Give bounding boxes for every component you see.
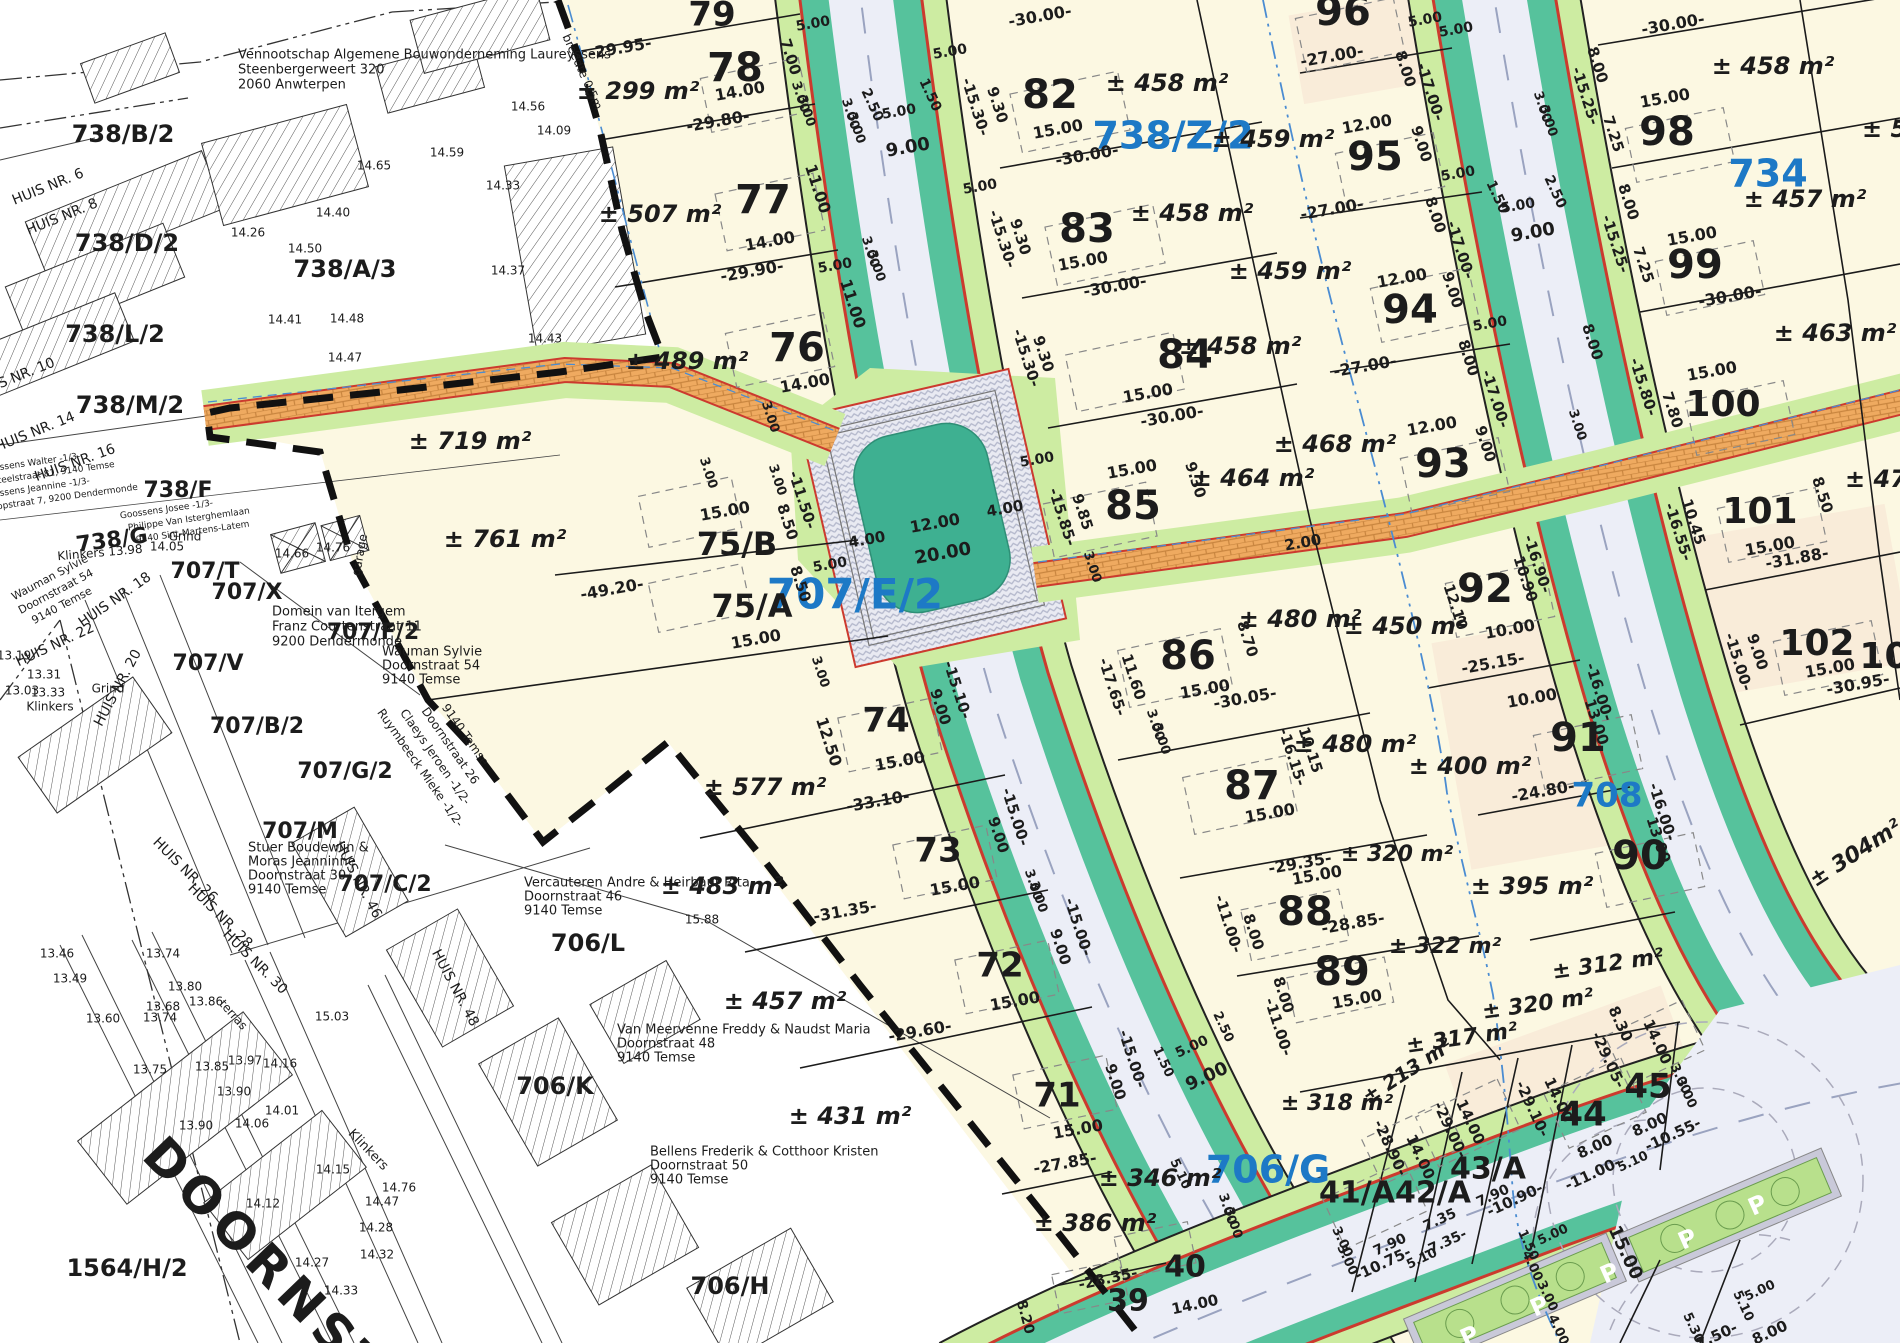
spot-height: 13.74 (143, 1011, 177, 1025)
parcel-number-92: 92 (1457, 566, 1513, 612)
zone-label-707-b-2: 707/B/2 (210, 714, 304, 739)
spot-height: 14.16 (263, 1057, 297, 1071)
parcel-number-82: 82 (1022, 72, 1078, 118)
parcel-number-74: 74 (862, 701, 909, 741)
owner-text: 9140 Temse (524, 904, 602, 919)
spot-height: 13.80 (168, 980, 202, 994)
parcel-number-45: 45 (1624, 1067, 1671, 1107)
owner-text: Franz Courtenstraat 11 (272, 620, 422, 635)
spot-height: 14.28 (359, 1221, 393, 1235)
owner-text: 9140 Temse (248, 883, 326, 898)
owner-text: Bellens Frederik & Cotthoor Kristen (650, 1145, 878, 1160)
spot-height: 13.49 (53, 972, 87, 986)
spot-height: 14.48 (330, 312, 364, 326)
spot-height: 14.50 (288, 242, 322, 256)
parcel-number-75a: 75/A (712, 587, 793, 625)
zone-label-706-k: 706/K (516, 1072, 595, 1100)
cadastral-map: 738/Z/2734707/E/2708706/G7978777675/B75/… (0, 0, 1900, 1343)
owner-text: 9140 Temse (617, 1051, 695, 1066)
spot-height: 13.90 (179, 1119, 213, 1133)
zone-label-706-h: 706/H (691, 1272, 770, 1300)
area-label: ± 459 m² (1229, 257, 1352, 285)
spot-height: 15.03 (315, 1010, 349, 1024)
spot-height: 14.47 (328, 351, 362, 365)
parcel-number-75b: 75/B (697, 525, 778, 563)
owner-text: Doornstraat 48 (617, 1037, 715, 1052)
parcel-number-99: 99 (1667, 242, 1723, 288)
area-label: ± 400 m² (1409, 752, 1532, 780)
parcel-number-100: 100 (1685, 384, 1760, 425)
zone-label-1564-h-2: 1564/H/2 (66, 1254, 187, 1282)
parcel-number-98: 98 (1639, 109, 1695, 155)
owner-text: Steenbergerweert 320 (238, 63, 385, 78)
area-label: ± 322 m² (1389, 934, 1502, 959)
parcel-number-41a: 41/A (1319, 1176, 1396, 1211)
surface-label: Grind (92, 682, 125, 696)
area-label: ± 507 m² (599, 200, 722, 228)
parcel-number-96: 96 (1315, 0, 1371, 35)
area-label: ± 386 m² (1034, 1209, 1157, 1237)
spot-height: 14.56 (511, 100, 545, 114)
area-label: ± 346 m² (1099, 1164, 1222, 1192)
spot-height: 13.75 (133, 1063, 167, 1077)
zone-label-738-m-2: 738/M/2 (76, 391, 184, 419)
spot-height: 14.06 (235, 1117, 269, 1131)
zone-label-707-g-2: 707/G/2 (297, 759, 392, 784)
parcel-number-101: 101 (1722, 491, 1797, 532)
spot-height: 13.85 (195, 1060, 229, 1074)
owner-text: Domein van Itergem (272, 605, 406, 620)
area-label: ± 458 m² (1179, 332, 1302, 360)
area-label: ± 458 m² (1106, 69, 1229, 97)
area-label: ± 450 m² (1344, 612, 1467, 640)
zone-label-706-l: 706/L (551, 929, 625, 957)
owner-text: Doornstraat 46 (524, 890, 622, 905)
owner-text: Doornstraat 30 (248, 869, 346, 884)
area-label: ± 761 m² (444, 525, 567, 553)
spot-height: 13.97 (228, 1054, 262, 1068)
spot-height: 14.59 (430, 146, 464, 160)
spot-height: 14.47 (365, 1195, 399, 1209)
area-label: ± 431 m² (789, 1102, 912, 1130)
surface-label: Klinkers (26, 700, 73, 714)
owner-text: 9140 Temse (382, 673, 460, 688)
zone-label-707-v: 707/V (173, 651, 244, 676)
spot-height: 14.40 (316, 206, 350, 220)
owner-text: Doornstraat 54 (382, 659, 480, 674)
spot-height: 14.09 (537, 124, 571, 138)
parcel-number-94: 94 (1382, 287, 1438, 333)
owner-text: Doornstraat 50 (650, 1159, 748, 1174)
parcel-number-76: 76 (769, 325, 825, 371)
spot-height: 13.90 (217, 1085, 251, 1099)
area-label: ± 459 m² (1212, 125, 1335, 153)
area-label-partial: ± 52 (1862, 115, 1900, 143)
owner-text: Vercauteren Andre & Heirbaut Rita (524, 876, 750, 891)
parcel-number-77: 77 (735, 177, 791, 223)
zone-label-738-d-2: 738/D/2 (75, 229, 179, 257)
parcel-number-83: 83 (1059, 206, 1115, 252)
zone-label-738-l-2: 738/L/2 (65, 320, 165, 348)
spot-height: 14.26 (231, 226, 265, 240)
spot-height: 14.43 (528, 332, 562, 346)
spot-height: 13.33 (31, 686, 65, 700)
area-label: ± 458 m² (1131, 199, 1254, 227)
parcel-number-85: 85 (1105, 483, 1161, 529)
spot-height: 15.88 (685, 913, 719, 927)
owner-text: Stuer Boudewijn & (248, 841, 369, 856)
cadastral-map-page: 738/Z/2734707/E/2708706/G7978777675/B75/… (0, 0, 1900, 1343)
parcel-number-71: 71 (1033, 1076, 1080, 1116)
area-label: ± 464 m² (1192, 464, 1315, 492)
parcel-number-79: 79 (688, 0, 735, 35)
zone-label-706-g: 706/G (1206, 1148, 1330, 1192)
zone-label-738-b-2: 738/B/2 (72, 120, 175, 148)
parcel-number-73: 73 (914, 831, 961, 871)
spot-height: 14.32 (360, 1248, 394, 1262)
zone-label-738-a-3: 738/A/3 (294, 255, 397, 283)
spot-height: 13.60 (86, 1012, 120, 1026)
area-label: ± 719 m² (409, 427, 532, 455)
owner-text: Moras Jeanninne (248, 855, 356, 870)
parcel-number-72: 72 (976, 946, 1023, 986)
parcel-number-86: 86 (1160, 633, 1216, 679)
owner-text: Vennootschap Algemene Bouwonderneming La… (238, 48, 611, 63)
area-label: ± 489 m² (626, 347, 749, 375)
parcel-number-95: 95 (1347, 134, 1403, 180)
area-label: ± 320 m² (1341, 842, 1454, 867)
owner-text: Wauman Sylvie (382, 645, 482, 660)
spot-height: 14.65 (357, 159, 391, 173)
area-label: ± 395 m² (1471, 872, 1594, 900)
area-label: ± 468 m² (1274, 430, 1397, 458)
spot-height: 14.76 (382, 1181, 416, 1195)
parcel-number-93: 93 (1415, 441, 1471, 487)
owner-text: 2060 Anwterpen (238, 78, 346, 93)
spot-height: 14.33 (486, 179, 520, 193)
zone-label-707-x: 707/X (212, 580, 283, 605)
spot-height: 14.01 (265, 1104, 299, 1118)
area-label: ± 458 m² (1712, 52, 1835, 80)
spot-height: 14.76 (316, 541, 350, 555)
spot-height: 14.41 (268, 313, 302, 327)
area-label: ± 577 m² (704, 773, 827, 801)
area-label: ± 457 m² (1744, 185, 1867, 213)
spot-height: 13.31 (27, 668, 61, 682)
area-label: ± 457 m² (724, 987, 847, 1015)
spot-height: 13.46 (40, 947, 74, 961)
area-label: ± 463 m² (1774, 319, 1897, 347)
owner-text: 9140 Temse (650, 1173, 728, 1188)
area-label-partial: ± 47 (1845, 465, 1900, 493)
parcel-number-40: 40 (1164, 1250, 1206, 1285)
parcel-number-39: 39 (1107, 1284, 1149, 1319)
zone-label-708: 708 (1572, 776, 1643, 816)
spot-height: 14.37 (491, 264, 525, 278)
spot-height: 14.66 (275, 547, 309, 561)
spot-height: 13.74 (146, 947, 180, 961)
spot-height: 14.15 (316, 1163, 350, 1177)
owner-text: Van Meervenne Freddy & Naudst Maria (617, 1023, 871, 1038)
